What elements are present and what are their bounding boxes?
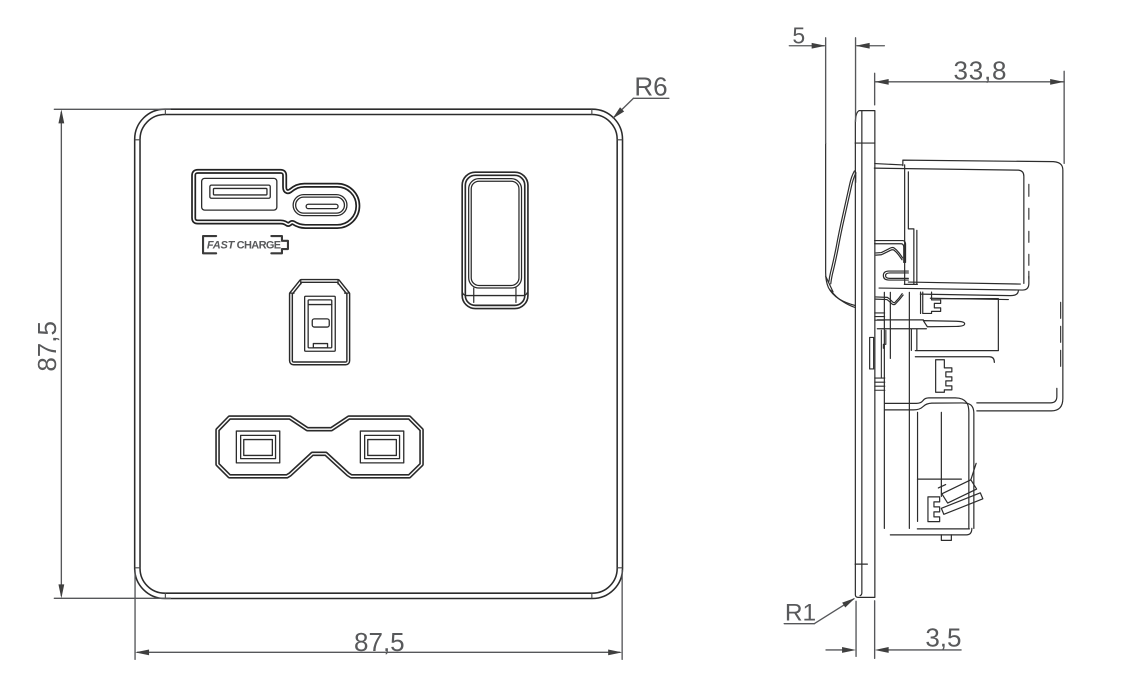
svg-text:87,5: 87,5	[32, 321, 62, 372]
svg-text:R1: R1	[785, 599, 816, 626]
svg-text:3,5: 3,5	[925, 622, 961, 652]
svg-text:87,5: 87,5	[354, 627, 405, 657]
svg-text:R6: R6	[634, 71, 667, 101]
svg-text:FAST: FAST	[207, 240, 236, 252]
svg-text:33,8: 33,8	[953, 55, 1007, 85]
svg-text:CHARGE: CHARGE	[237, 240, 281, 252]
svg-text:5: 5	[792, 22, 805, 48]
